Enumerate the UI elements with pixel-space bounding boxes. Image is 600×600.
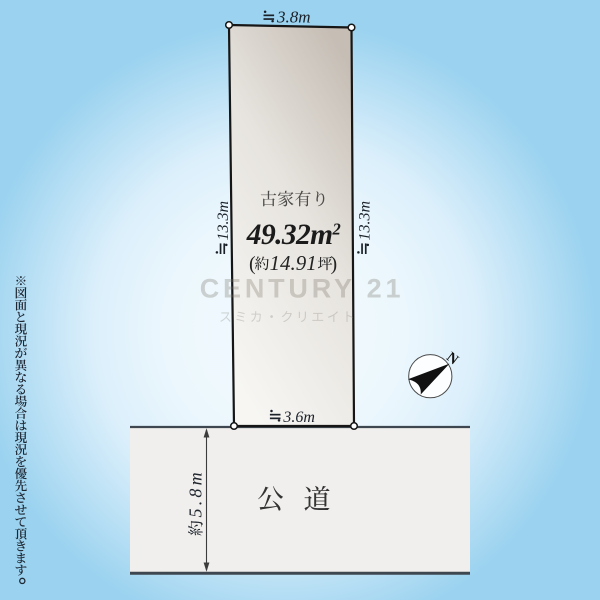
svg-text:3.8m: 3.8m — [276, 8, 311, 27]
svg-text:): ) — [331, 253, 338, 275]
svg-text:14.91: 14.91 — [270, 251, 317, 275]
svg-text:13.3m: 13.3m — [356, 201, 373, 241]
svg-text:3.6m: 3.6m — [282, 409, 315, 426]
svg-text:(: ( — [249, 253, 256, 275]
svg-text:5.8m: 5.8m — [186, 469, 206, 517]
svg-text:49.32m2: 49.32m2 — [246, 219, 341, 251]
svg-text:13.3m: 13.3m — [215, 201, 232, 241]
svg-text:CENTURY 21: CENTURY 21 — [200, 274, 405, 304]
